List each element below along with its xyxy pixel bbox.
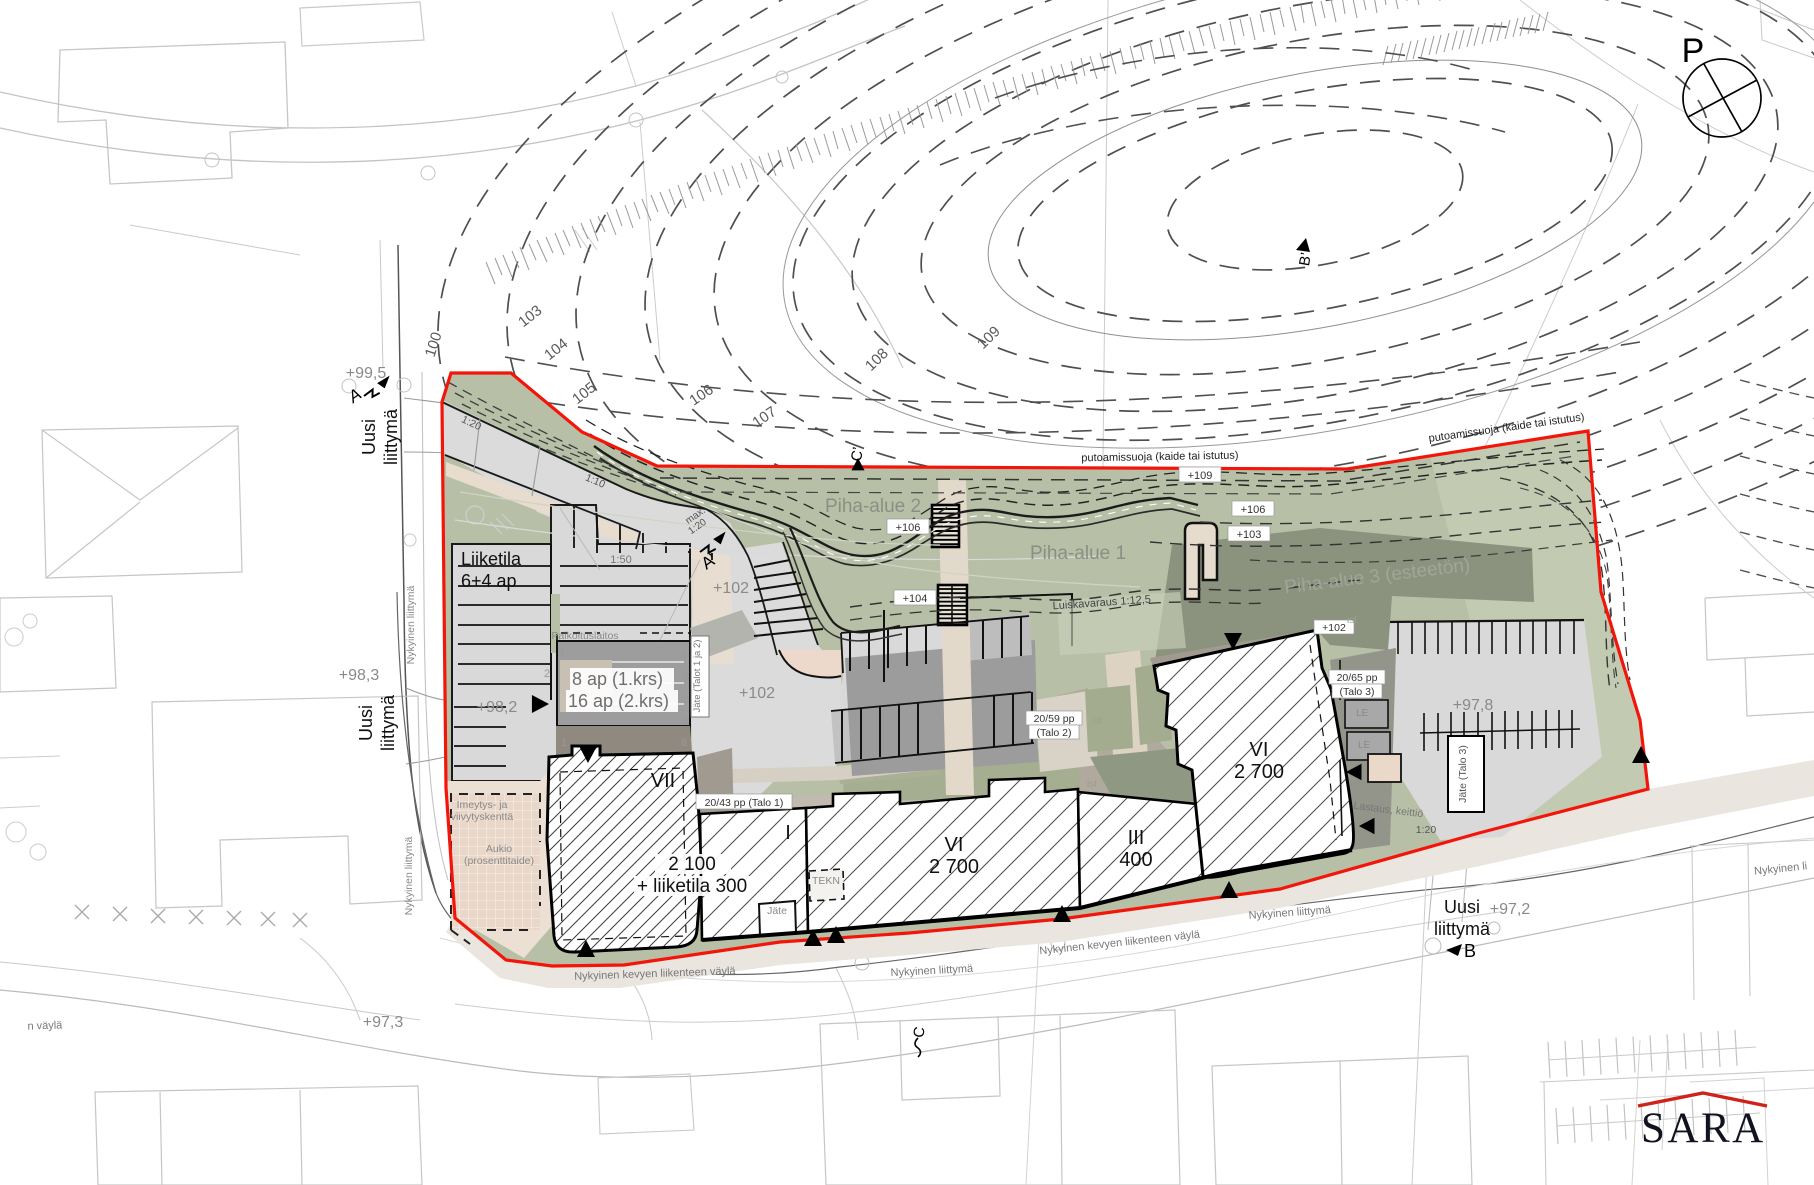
svg-text:ist: ist bbox=[1087, 779, 1097, 790]
svg-text:+102: +102 bbox=[1322, 622, 1346, 634]
svg-text:Uusi: Uusi bbox=[1444, 897, 1480, 917]
svg-text:VII: VII bbox=[651, 770, 675, 792]
svg-text:+102: +102 bbox=[713, 580, 749, 597]
svg-text:+97,8: +97,8 bbox=[1453, 697, 1494, 714]
svg-text:+98,2: +98,2 bbox=[477, 699, 518, 716]
svg-text:+103: +103 bbox=[1237, 529, 1262, 541]
svg-text:(Talo 2): (Talo 2) bbox=[1036, 727, 1071, 739]
svg-text:400: 400 bbox=[1119, 849, 1152, 871]
svg-text:+98,3: +98,3 bbox=[339, 667, 380, 684]
svg-text:6+4 ap: 6+4 ap bbox=[461, 571, 517, 591]
svg-text:8: 8 bbox=[681, 737, 687, 749]
svg-text:SARA: SARA bbox=[1641, 1105, 1766, 1152]
svg-text:LE: LE bbox=[1356, 708, 1369, 719]
svg-text:Jäte (Talot 1 ja 2): Jäte (Talot 1 ja 2) bbox=[692, 640, 703, 713]
svg-text:20/59 pp: 20/59 pp bbox=[1034, 713, 1075, 725]
svg-text:+ liiketila 300: + liiketila 300 bbox=[637, 876, 747, 897]
svg-text:+106: +106 bbox=[1241, 504, 1266, 516]
svg-text:ist: ist bbox=[1092, 716, 1102, 727]
svg-text:LE: LE bbox=[1358, 740, 1371, 751]
svg-text:III: III bbox=[1128, 827, 1145, 849]
svg-text:+109: +109 bbox=[1188, 470, 1213, 482]
svg-text:+99,5: +99,5 bbox=[346, 365, 387, 382]
svg-text:(Talo 3): (Talo 3) bbox=[1339, 686, 1374, 698]
svg-text:n väylä: n väylä bbox=[27, 1019, 63, 1032]
svg-text:+106: +106 bbox=[896, 522, 921, 534]
svg-text:3: 3 bbox=[558, 648, 564, 660]
svg-text:Imeytys- ja: Imeytys- ja bbox=[457, 799, 508, 811]
svg-text:Uusi: Uusi bbox=[359, 419, 379, 455]
svg-text:ist: ist bbox=[1347, 615, 1357, 626]
svg-text:Piha-alue 2: Piha-alue 2 bbox=[825, 496, 921, 517]
svg-text:TEKN: TEKN bbox=[812, 875, 840, 887]
svg-text:Nykyinen liittymä: Nykyinen liittymä bbox=[405, 585, 417, 664]
svg-text:8 ap (1.krs): 8 ap (1.krs) bbox=[572, 669, 663, 689]
svg-text:Paikoituslaitos: Paikoituslaitos bbox=[551, 630, 618, 642]
svg-text:+97,3: +97,3 bbox=[363, 1014, 404, 1031]
svg-text:(prosenttitaide): (prosenttitaide) bbox=[464, 855, 534, 867]
svg-text:16 ap (2.krs): 16 ap (2.krs) bbox=[568, 691, 669, 711]
svg-text:VI: VI bbox=[1250, 739, 1269, 761]
svg-text:2 700: 2 700 bbox=[1234, 761, 1284, 783]
svg-text:Liiketila: Liiketila bbox=[461, 549, 522, 569]
svg-text:20/43 pp (Talo 1): 20/43 pp (Talo 1) bbox=[705, 797, 784, 809]
svg-text:4: 4 bbox=[681, 650, 687, 662]
svg-text:+104: +104 bbox=[903, 593, 928, 605]
svg-text:5: 5 bbox=[683, 672, 689, 684]
svg-text:Uusi: Uusi bbox=[356, 705, 376, 741]
svg-text:2: 2 bbox=[544, 668, 550, 680]
svg-text:+97,2: +97,2 bbox=[1490, 901, 1531, 918]
svg-text:Aukio: Aukio bbox=[486, 843, 512, 855]
svg-text:I: I bbox=[785, 822, 791, 844]
svg-text:20/65 pp: 20/65 pp bbox=[1337, 672, 1378, 684]
svg-text:1: 1 bbox=[561, 737, 567, 749]
svg-text:6: 6 bbox=[683, 694, 689, 706]
svg-text:B: B bbox=[1464, 941, 1476, 961]
svg-text:1:20: 1:20 bbox=[1416, 824, 1437, 836]
svg-text:liittymä: liittymä bbox=[381, 408, 401, 465]
svg-text:Jäte: Jäte bbox=[767, 905, 787, 917]
svg-text:1:50: 1:50 bbox=[610, 554, 631, 566]
svg-text:viivytyskenttä: viivytyskenttä bbox=[451, 811, 514, 823]
svg-text:2 100: 2 100 bbox=[668, 854, 716, 875]
svg-text:VI: VI bbox=[945, 834, 964, 856]
svg-text:2 700: 2 700 bbox=[929, 856, 979, 878]
svg-text:liittymä: liittymä bbox=[378, 694, 398, 751]
svg-text:Piha-alue 1: Piha-alue 1 bbox=[1030, 543, 1126, 564]
svg-text:Nykyinen liittymä: Nykyinen liittymä bbox=[403, 836, 415, 915]
svg-text:liittymä: liittymä bbox=[1434, 919, 1491, 939]
svg-text:+102: +102 bbox=[739, 685, 775, 702]
svg-text:Jäte (Talo 3): Jäte (Talo 3) bbox=[1457, 745, 1469, 803]
svg-text:7: 7 bbox=[683, 716, 689, 728]
